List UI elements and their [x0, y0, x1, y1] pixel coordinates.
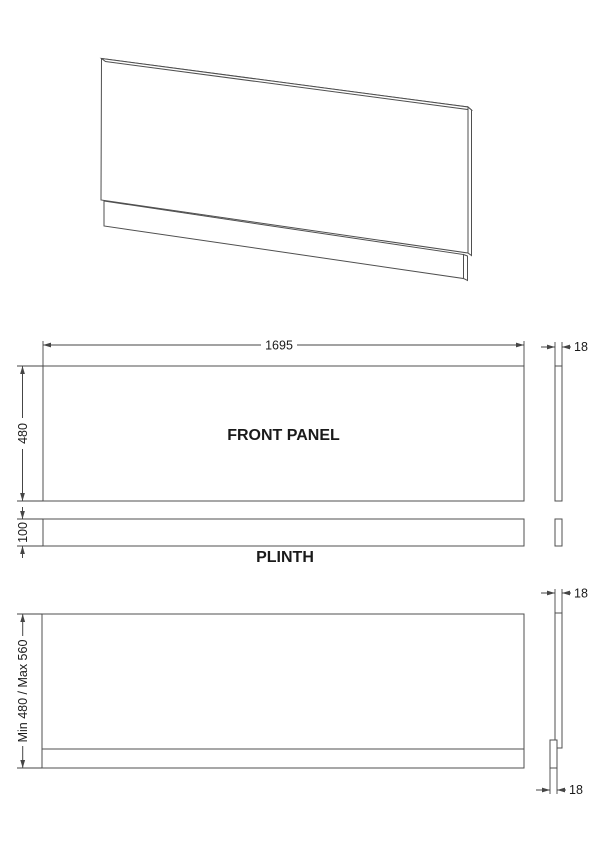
front-panel-label: FRONT PANEL [227, 427, 340, 444]
drawing-svg: FRONT PANEL PLINTH 1695 480 100 [0, 0, 600, 849]
panel-height-dimension-label: 480 [16, 423, 30, 444]
assembled-plinth-side-view [550, 740, 557, 768]
panel-thickness-dimension-label: 18 [574, 340, 588, 354]
assembled-plinth-thickness-label: 18 [569, 783, 583, 797]
arrowhead [20, 546, 25, 554]
plinth-outline [43, 519, 524, 546]
assembled-height-dimension: Min 480 / Max 560 [16, 614, 42, 768]
assembled-panel-thickness-label: 18 [574, 587, 588, 601]
front-panel-side-view [555, 366, 562, 501]
bath-panel-technical-drawing: FRONT PANEL PLINTH 1695 480 100 [0, 0, 600, 849]
assembled-height-dimension-label: Min 480 / Max 560 [16, 640, 30, 743]
arrowhead [547, 591, 555, 596]
arrowhead [542, 788, 550, 793]
panel-thickness-dimension: 18 [541, 340, 588, 366]
assembled-view [42, 613, 562, 768]
arrowhead [557, 788, 565, 793]
assembled-outline [42, 614, 524, 768]
plinth-height-dimension: 100 [16, 507, 43, 558]
plinth-side-view [555, 519, 562, 546]
width-dimension-label: 1695 [265, 339, 293, 353]
arrowhead [20, 614, 25, 622]
assembled-panel-side-view [555, 613, 562, 748]
plinth-label: PLINTH [256, 549, 314, 566]
perspective-view [101, 59, 472, 281]
arrowhead [516, 343, 524, 348]
assembled-panel-thickness-dimension: 18 [541, 587, 588, 614]
arrowhead [547, 345, 555, 350]
arrowhead [20, 366, 25, 374]
arrowhead [562, 591, 570, 596]
arrowhead [43, 343, 51, 348]
arrowhead [20, 760, 25, 768]
perspective-plinth-end-face [464, 255, 468, 281]
arrowhead [20, 511, 25, 519]
arrowhead [562, 345, 570, 350]
width-dimension: 1695 [43, 339, 524, 367]
assembled-plinth-thickness-dimension: 18 [536, 768, 583, 797]
plinth-height-dimension-label: 100 [16, 522, 30, 543]
front-views: FRONT PANEL PLINTH [43, 366, 562, 566]
perspective-panel-end-face [468, 107, 472, 256]
panel-height-dimension: 480 [16, 366, 43, 501]
arrowhead [20, 493, 25, 501]
